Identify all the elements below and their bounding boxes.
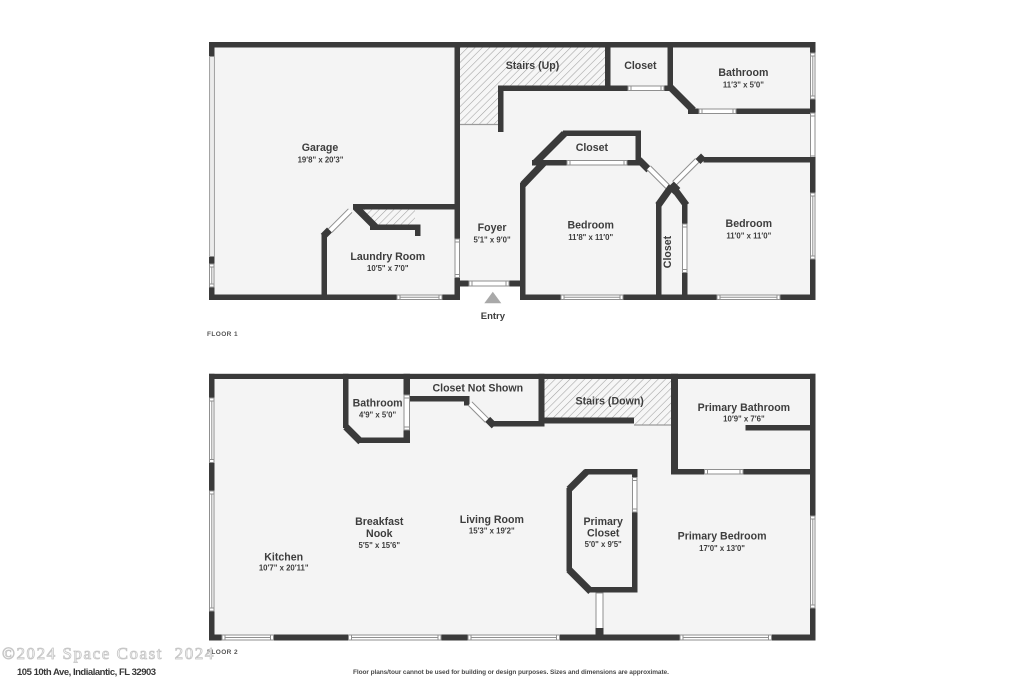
svg-text:15′3" x 19′2": 15′3" x 19′2" xyxy=(469,527,515,536)
svg-text:Stairs (Up): Stairs (Up) xyxy=(506,60,560,72)
svg-text:Primary: Primary xyxy=(583,516,623,528)
svg-text:11′0" x 11′0": 11′0" x 11′0" xyxy=(726,231,771,240)
svg-text:10′7" x 20′11": 10′7" x 20′11" xyxy=(259,563,309,572)
svg-text:4′9" x 5′0": 4′9" x 5′0" xyxy=(359,410,396,419)
svg-text:Entry: Entry xyxy=(481,311,506,322)
svg-text:10′5" x 7′0": 10′5" x 7′0" xyxy=(367,264,409,273)
svg-text:Breakfast: Breakfast xyxy=(355,516,404,528)
svg-text:10′9" x 7′6": 10′9" x 7′6" xyxy=(723,415,765,424)
svg-text:Closet: Closet xyxy=(662,235,674,268)
svg-text:Nook: Nook xyxy=(366,528,393,540)
svg-text:Primary Bedroom: Primary Bedroom xyxy=(678,530,767,542)
svg-text:Kitchen: Kitchen xyxy=(264,551,303,563)
svg-text:Bedroom: Bedroom xyxy=(726,218,773,230)
svg-text:Stairs (Down): Stairs (Down) xyxy=(576,395,644,407)
svg-text:Laundry Room: Laundry Room xyxy=(350,251,425,263)
svg-text:Garage: Garage xyxy=(302,142,339,154)
svg-text:Bedroom: Bedroom xyxy=(567,220,614,232)
svg-text:11′8" x 11′0": 11′8" x 11′0" xyxy=(568,233,613,242)
svg-text:FLOOR 1: FLOOR 1 xyxy=(207,331,238,338)
svg-text:Primary Bathroom: Primary Bathroom xyxy=(698,402,790,414)
svg-text:19′8" x 20′3": 19′8" x 20′3" xyxy=(298,156,344,165)
svg-text:Closet: Closet xyxy=(576,142,609,154)
svg-text:Living Room: Living Room xyxy=(460,514,524,526)
svg-text:Foyer: Foyer xyxy=(478,222,507,234)
svg-text:Closet: Closet xyxy=(587,528,620,540)
svg-text:11′3" x 5′0": 11′3" x 5′0" xyxy=(723,81,764,90)
svg-text:Bathroom: Bathroom xyxy=(718,67,768,79)
svg-text:Closet Not Shown: Closet Not Shown xyxy=(432,383,523,395)
svg-text:5′0" x 9′5": 5′0" x 9′5" xyxy=(585,540,622,549)
svg-text:5′1" x 9′0": 5′1" x 9′0" xyxy=(474,235,511,244)
svg-text:Closet: Closet xyxy=(624,60,657,72)
svg-text:17′0" x 13′0": 17′0" x 13′0" xyxy=(699,544,745,553)
svg-text:Bathroom: Bathroom xyxy=(353,397,403,409)
svg-text:5′5" x 15′6": 5′5" x 15′6" xyxy=(359,541,401,550)
